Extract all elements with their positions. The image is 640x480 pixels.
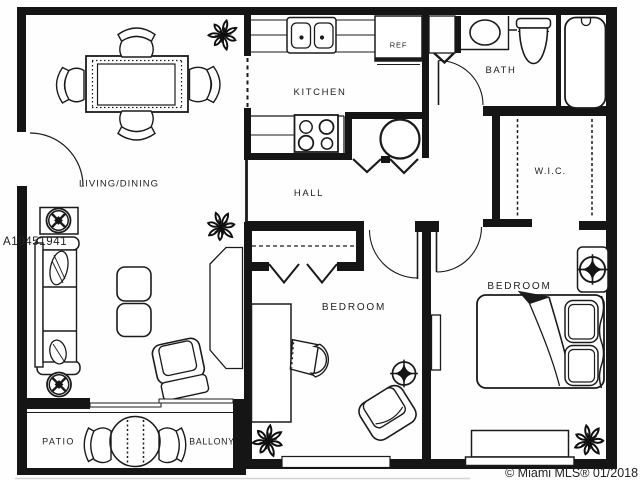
svg-text:A10451941: A10451941 bbox=[3, 236, 67, 248]
svg-text:KITCHEN: KITCHEN bbox=[294, 87, 347, 98]
svg-text:PATIO: PATIO bbox=[42, 437, 75, 447]
svg-text:LIVING/DINING: LIVING/DINING bbox=[79, 179, 159, 190]
svg-text:BEDROOM: BEDROOM bbox=[487, 281, 551, 292]
svg-text:BEDROOM: BEDROOM bbox=[322, 302, 386, 313]
svg-text:HALL: HALL bbox=[294, 188, 324, 199]
svg-text:REF: REF bbox=[390, 41, 407, 50]
svg-text:BALLONY: BALLONY bbox=[189, 437, 234, 447]
svg-text:W.I.C.: W.I.C. bbox=[535, 166, 567, 176]
svg-text:BATH: BATH bbox=[485, 65, 516, 76]
svg-text:© Miami MLS® 01/2018: © Miami MLS® 01/2018 bbox=[505, 466, 638, 480]
